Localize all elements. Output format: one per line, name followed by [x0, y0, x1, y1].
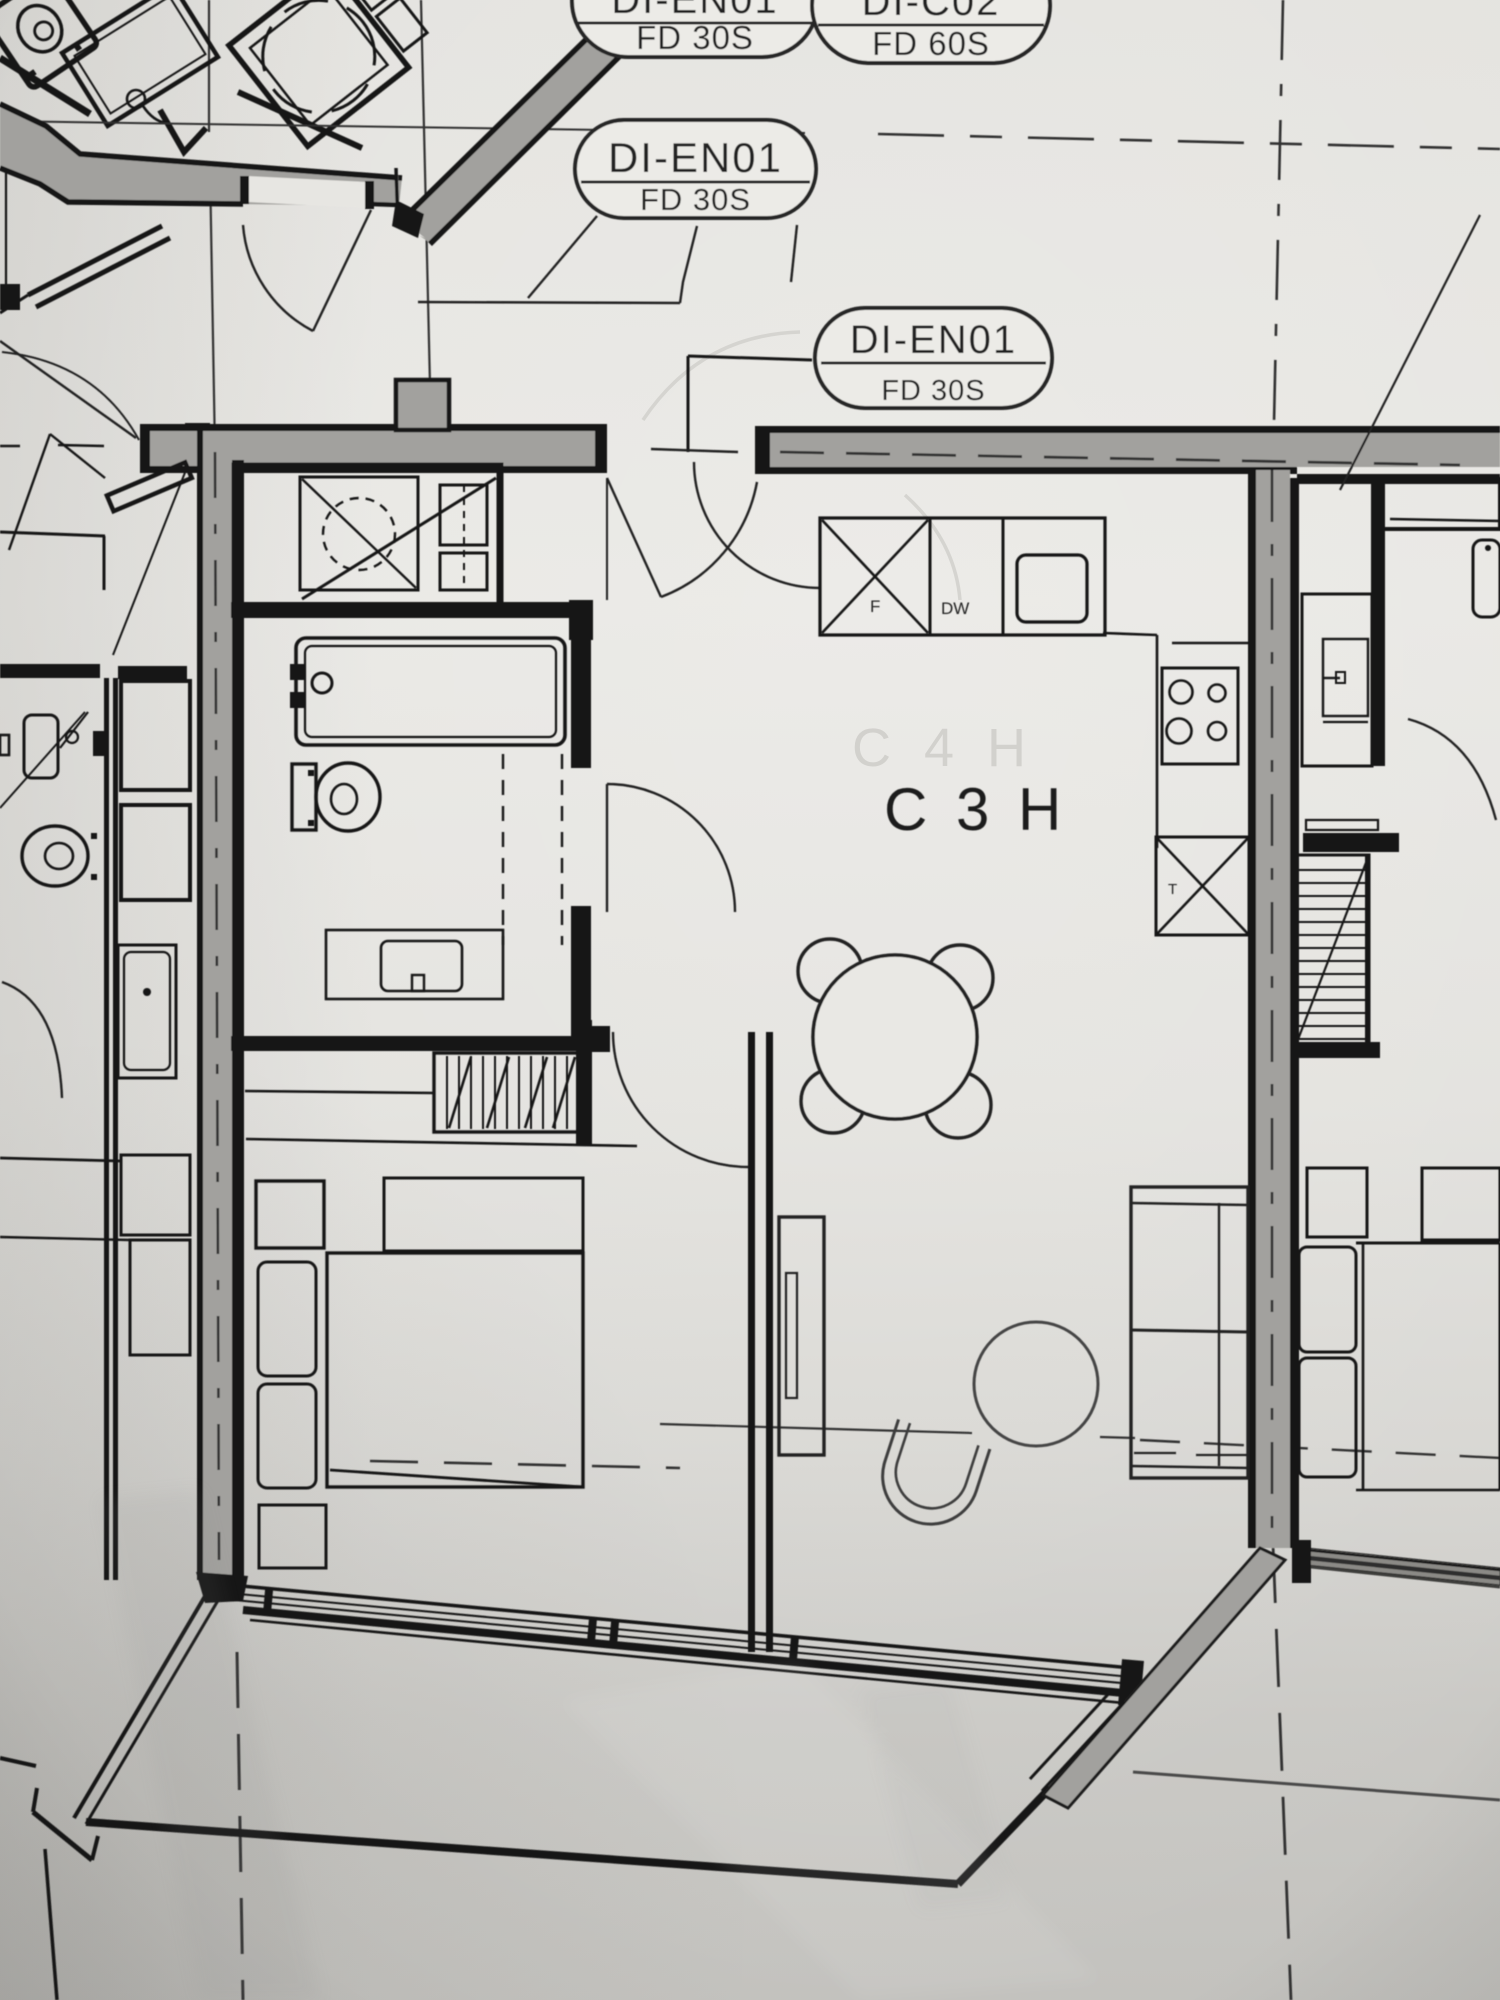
svg-text:FD 30S: FD 30S — [636, 19, 754, 56]
svg-text:DI-EN01: DI-EN01 — [850, 318, 1017, 362]
svg-text:FD 60S: FD 60S — [872, 25, 990, 62]
svg-text:DI-EN01: DI-EN01 — [608, 134, 783, 181]
svg-text:T: T — [1168, 881, 1177, 898]
svg-text:FD 30S: FD 30S — [881, 375, 985, 407]
svg-text:DW: DW — [941, 599, 969, 618]
svg-text:C 3 H: C 3 H — [884, 776, 1067, 843]
svg-text:FD 30S: FD 30S — [640, 182, 751, 217]
svg-text:F: F — [870, 597, 880, 616]
svg-text:C 4 H: C 4 H — [852, 718, 1035, 778]
svg-text:DI-C02: DI-C02 — [862, 0, 1001, 24]
